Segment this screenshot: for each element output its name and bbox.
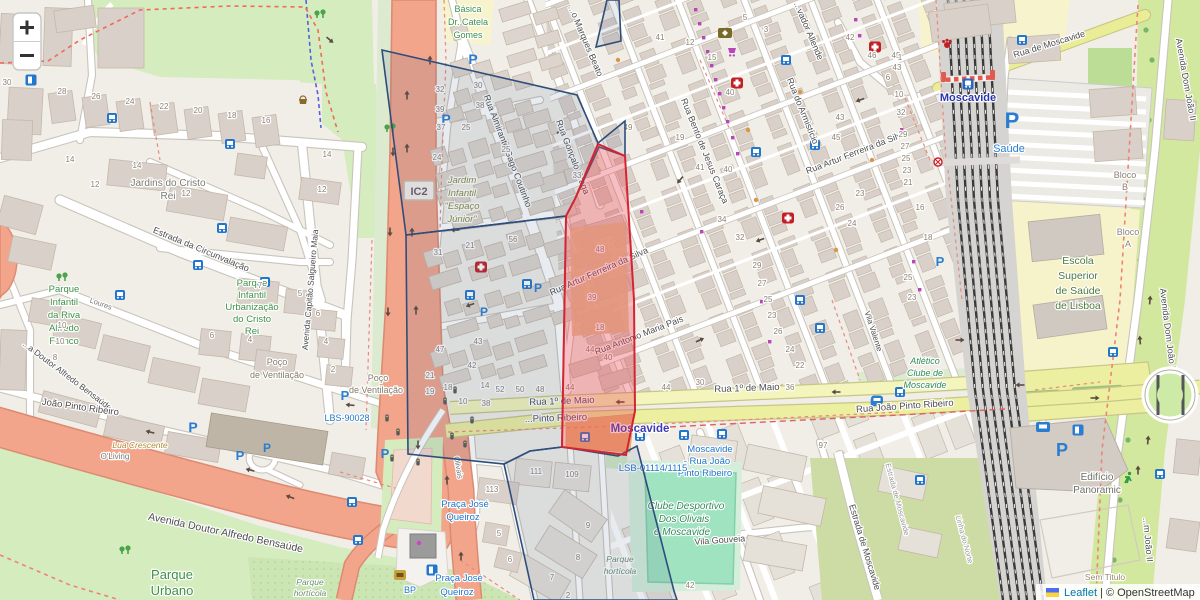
svg-text:Moscavide: Moscavide: [903, 380, 946, 390]
svg-text:41: 41: [696, 163, 705, 172]
svg-text:2: 2: [331, 365, 336, 374]
svg-text:44: 44: [662, 383, 671, 392]
svg-text:Rua 1º de Maio: Rua 1º de Maio: [714, 382, 780, 395]
svg-text:24: 24: [848, 219, 857, 228]
svg-text:30: 30: [3, 78, 12, 87]
svg-text:24: 24: [786, 345, 795, 354]
svg-text:P: P: [1056, 440, 1068, 460]
svg-text:10: 10: [895, 90, 904, 99]
svg-text:O'Living: O'Living: [101, 452, 130, 461]
svg-text:P: P: [468, 51, 477, 67]
svg-text:Queiroz: Queiroz: [440, 587, 474, 598]
svg-text:16: 16: [262, 116, 271, 125]
svg-text:6: 6: [210, 331, 215, 340]
svg-text:P: P: [188, 419, 197, 435]
svg-text:Bloco: Bloco: [1114, 170, 1137, 180]
svg-text:29: 29: [753, 261, 762, 270]
svg-text:42: 42: [686, 581, 695, 590]
svg-text:BP: BP: [404, 585, 416, 595]
svg-text:Gomes: Gomes: [453, 30, 483, 40]
svg-text:5: 5: [298, 289, 303, 298]
svg-text:Parque: Parque: [237, 278, 268, 289]
svg-text:- Rua João: - Rua João: [684, 456, 730, 467]
svg-text:Poço: Poço: [267, 357, 288, 367]
svg-text:21: 21: [904, 178, 913, 187]
svg-text:Dr. Catela: Dr. Catela: [448, 17, 488, 27]
svg-text:6: 6: [886, 73, 891, 82]
svg-text:Superior: Superior: [1058, 270, 1098, 282]
svg-text:24: 24: [126, 97, 135, 106]
svg-text:42: 42: [846, 33, 855, 42]
svg-text:26: 26: [92, 92, 101, 101]
svg-text:26: 26: [774, 327, 783, 336]
svg-text:Lua Crescente: Lua Crescente: [112, 440, 168, 450]
svg-text:Panoramic: Panoramic: [1073, 485, 1121, 496]
svg-text:19: 19: [676, 133, 685, 142]
svg-text:5: 5: [497, 529, 502, 538]
svg-text:40: 40: [724, 165, 733, 174]
svg-text:12: 12: [686, 38, 695, 47]
svg-text:14: 14: [66, 155, 75, 164]
svg-text:4: 4: [324, 337, 329, 346]
svg-text:Edifício: Edifício: [1081, 472, 1114, 483]
svg-text:34: 34: [718, 215, 727, 224]
svg-text:Escola: Escola: [1062, 255, 1094, 267]
svg-text:Praça José: Praça José: [441, 499, 489, 510]
svg-text:e Moscavide: e Moscavide: [654, 527, 711, 538]
svg-text:| © OpenStreetMap: | © OpenStreetMap: [1100, 587, 1195, 599]
svg-text:do Cristo: do Cristo: [233, 314, 271, 325]
svg-text:Moscavide: Moscavide: [687, 444, 732, 455]
svg-text:27: 27: [758, 279, 767, 288]
svg-text:43: 43: [836, 113, 845, 122]
svg-text:40: 40: [726, 88, 735, 97]
svg-text:25: 25: [764, 295, 773, 304]
svg-text:A: A: [1125, 239, 1131, 249]
svg-text:Rei: Rei: [160, 191, 175, 202]
svg-text:Parque: Parque: [296, 577, 324, 587]
svg-text:20: 20: [194, 106, 203, 115]
svg-text:12: 12: [182, 189, 191, 198]
svg-text:113: 113: [486, 485, 499, 494]
svg-text:Saúde: Saúde: [993, 143, 1025, 155]
svg-text:LBS-90028: LBS-90028: [324, 413, 369, 423]
svg-text:29: 29: [899, 130, 908, 139]
svg-text:18: 18: [924, 233, 933, 242]
svg-text:15: 15: [708, 53, 717, 62]
svg-text:6: 6: [316, 309, 321, 318]
svg-text:25: 25: [904, 273, 913, 282]
svg-text:Urbano: Urbano: [151, 583, 194, 598]
svg-text:Parque: Parque: [49, 284, 80, 295]
svg-text:Dos Olivais: Dos Olivais: [659, 514, 710, 525]
svg-text:25: 25: [902, 154, 911, 163]
svg-text:P: P: [236, 448, 245, 463]
svg-text:Bloco: Bloco: [1117, 227, 1140, 237]
svg-text:P: P: [381, 446, 390, 461]
svg-text:P: P: [936, 254, 945, 269]
svg-text:36: 36: [786, 383, 795, 392]
svg-text:6: 6: [508, 555, 513, 564]
svg-text:da Riva: da Riva: [48, 310, 81, 321]
svg-text:Leaflet: Leaflet: [1064, 587, 1097, 599]
svg-text:Infantil: Infantil: [238, 290, 266, 301]
svg-text:32: 32: [736, 233, 745, 242]
svg-text:23: 23: [908, 293, 917, 302]
svg-text:de Lisboa: de Lisboa: [1055, 300, 1101, 312]
svg-text:B: B: [1122, 182, 1128, 192]
svg-text:hortícola: hortícola: [294, 588, 327, 598]
svg-text:Básica: Básica: [454, 4, 481, 14]
svg-text:Atlético: Atlético: [909, 356, 940, 366]
svg-text:23: 23: [856, 189, 865, 198]
svg-text:23: 23: [768, 311, 777, 320]
svg-text:Urbanização: Urbanização: [225, 302, 278, 313]
svg-text:Clube de: Clube de: [907, 368, 943, 378]
svg-text:43: 43: [893, 63, 902, 72]
svg-text:P: P: [1005, 108, 1020, 133]
svg-text:Clube Desportivo: Clube Desportivo: [648, 501, 725, 512]
svg-text:7: 7: [258, 281, 263, 290]
svg-text:41: 41: [656, 33, 665, 42]
svg-text:P: P: [263, 441, 271, 455]
svg-text:28: 28: [58, 87, 67, 96]
svg-text:Infantil: Infantil: [50, 297, 78, 308]
svg-text:8: 8: [53, 353, 58, 362]
svg-text:22: 22: [160, 102, 169, 111]
svg-text:97: 97: [819, 441, 828, 450]
svg-text:22: 22: [796, 361, 805, 370]
svg-text:de Saúde: de Saúde: [1056, 285, 1101, 297]
svg-text:Parque: Parque: [151, 567, 193, 582]
svg-text:3: 3: [764, 25, 769, 34]
svg-text:12: 12: [91, 180, 100, 189]
svg-text:de Ventilação: de Ventilação: [250, 370, 304, 380]
svg-text:16: 16: [916, 203, 925, 212]
svg-text:27: 27: [901, 142, 910, 151]
svg-text:5: 5: [743, 13, 748, 22]
svg-text:de Ventilação: de Ventilação: [349, 385, 403, 395]
svg-text:12: 12: [318, 185, 327, 194]
svg-text:45: 45: [832, 133, 841, 142]
svg-text:18: 18: [228, 111, 237, 120]
svg-text:14: 14: [323, 150, 332, 159]
svg-text:Praça José: Praça José: [435, 573, 483, 584]
svg-text:Sem Titulo: Sem Titulo: [1085, 572, 1125, 582]
svg-text:14: 14: [133, 161, 142, 170]
svg-text:1: 1: [898, 53, 903, 62]
svg-text:23: 23: [903, 166, 912, 175]
svg-text:Queiroz: Queiroz: [446, 512, 480, 523]
svg-text:4: 4: [248, 335, 253, 344]
svg-text:Jardins do Cristo: Jardins do Cristo: [130, 178, 205, 189]
svg-text:10: 10: [58, 321, 67, 330]
svg-text:10: 10: [56, 337, 65, 346]
svg-text:32: 32: [897, 108, 906, 117]
svg-text:Poço: Poço: [368, 373, 389, 383]
svg-text:26: 26: [836, 203, 845, 212]
svg-text:Moscavide: Moscavide: [940, 92, 996, 104]
svg-text:30: 30: [696, 378, 705, 387]
svg-text:46: 46: [868, 51, 877, 60]
